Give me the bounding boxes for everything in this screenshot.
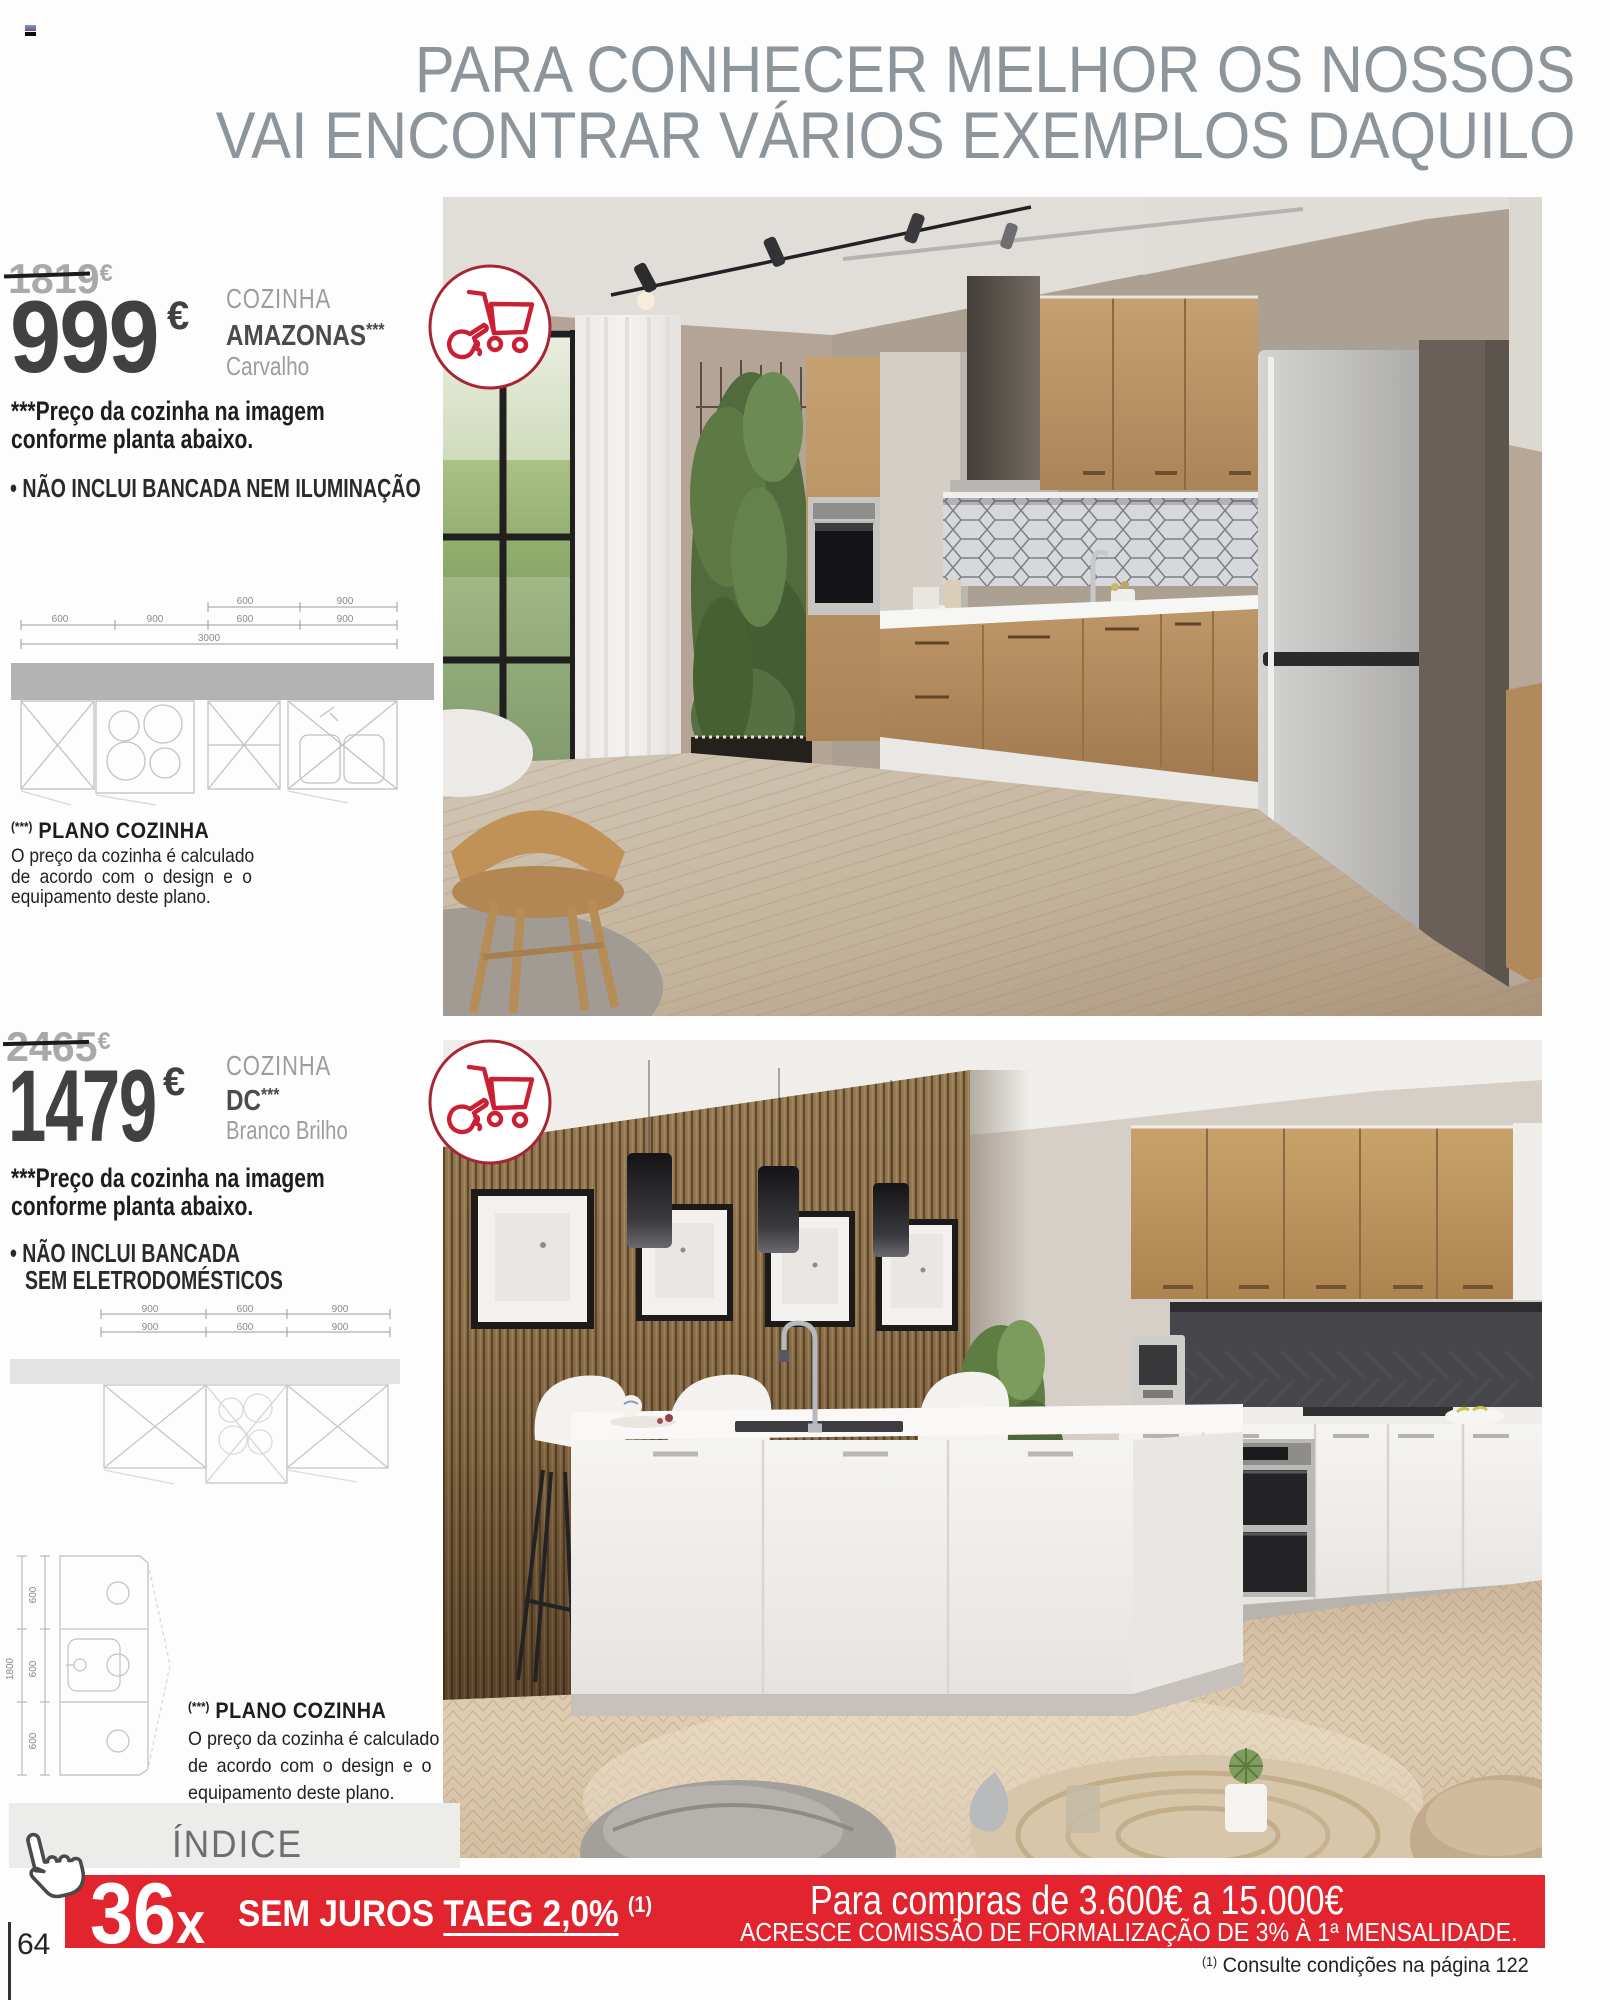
svg-text:900: 900: [147, 614, 164, 625]
svg-text:600: 600: [28, 1732, 39, 1749]
svg-text:900: 900: [332, 1304, 349, 1315]
svg-text:900: 900: [337, 596, 354, 607]
svg-text:3000: 3000: [198, 633, 221, 644]
svg-text:900: 900: [332, 1322, 349, 1333]
svg-text:900: 900: [142, 1322, 159, 1333]
svg-text:900: 900: [337, 614, 354, 625]
svg-text:600: 600: [237, 596, 254, 607]
svg-text:900: 900: [142, 1304, 159, 1315]
svg-text:600: 600: [52, 614, 69, 625]
svg-text:600: 600: [237, 1322, 254, 1333]
svg-text:1800: 1800: [5, 1657, 16, 1680]
svg-text:600: 600: [28, 1586, 39, 1603]
svg-text:600: 600: [237, 1304, 254, 1315]
svg-text:600: 600: [28, 1660, 39, 1677]
svg-text:600: 600: [237, 614, 254, 625]
